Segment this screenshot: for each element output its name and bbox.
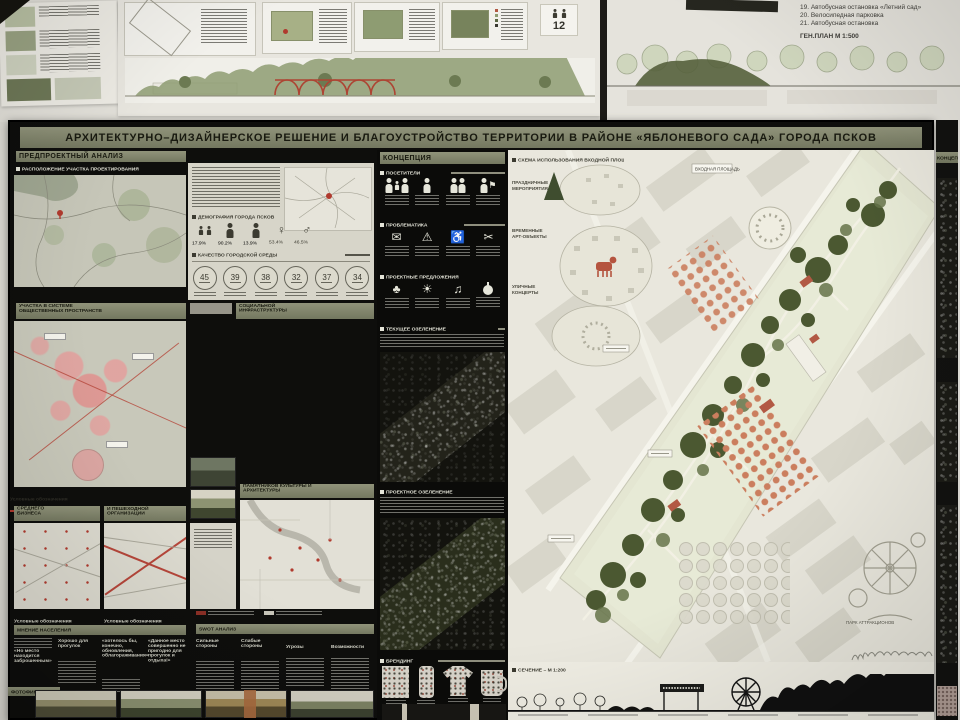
visitors-subheader: ПОСЕТИТЕЛИ <box>380 168 505 178</box>
family-icon <box>385 178 393 193</box>
business-map <box>14 523 100 609</box>
legend-chip <box>495 14 498 17</box>
analysis-paragraph <box>192 167 280 209</box>
family-icon <box>401 178 409 193</box>
branding-header-text: БРЕНДИНГ <box>386 658 413 664</box>
visitor-type: ⚑ <box>474 178 503 207</box>
small-gray-box <box>190 303 232 314</box>
adjacent-board-header-bar: КОНЦЕП <box>936 152 958 163</box>
attractions-label: ПАРК АТТРАКЦИОНОВ <box>846 620 894 625</box>
culture-monuments-map <box>240 500 374 609</box>
legend-chip <box>495 24 498 27</box>
map-transport-header: КАРТА-СХЕМА ТРАНСПОРТНОЙ И ПЕШЕХОДНОЙ ОР… <box>107 506 149 515</box>
legend-block <box>196 611 366 617</box>
paving-texture-sample <box>937 686 957 716</box>
proposal-item: ♫ <box>443 282 472 310</box>
person-icon <box>552 9 557 18</box>
context-map-fragment <box>190 523 236 609</box>
map-business-header-bar: КАРТА-СХЕМА РАСПОЛОЖЕНИЯ МАЛОГО И СРЕДНЕ… <box>14 506 100 521</box>
bubble-label: ВРЕМЕННЫЕ <box>512 228 543 233</box>
events-icon: ♫ <box>453 282 462 296</box>
mini-map-thumb <box>6 55 37 76</box>
panel-legend <box>409 9 435 41</box>
flag-icon: ⚑ <box>488 178 496 193</box>
mini-photo-thumb <box>7 78 52 101</box>
visitors-icons-row: ⚑ <box>380 178 505 207</box>
visitor-type <box>382 178 411 207</box>
site-photo <box>120 690 202 718</box>
resident-quote: «хотелось бы, конечно, обновления, облаг… <box>102 638 143 658</box>
photo-artifact-strip <box>244 690 256 718</box>
demography-value: 13.9% <box>243 240 257 246</box>
transport-map <box>104 523 186 609</box>
map-culture-header-bar: КАРТА-СХЕМА РАСПОЛОЖЕНИЯ ПАМЯТНИКОВ КУЛЬ… <box>240 484 374 498</box>
problems-subheader: ПРОБЛЕМАТИКА <box>380 220 505 230</box>
map-label-chip <box>106 441 128 448</box>
adjacent-board-image <box>937 178 957 358</box>
opinion-quotes: «Но место находится заброшенным» Хорошо … <box>14 638 188 686</box>
site-photo <box>190 457 236 487</box>
badge-number: 12 <box>553 21 565 32</box>
site-plan-shape <box>271 11 313 41</box>
greenery-icon: ♣ <box>393 282 401 296</box>
map-culture-header: КАРТА-СХЕМА РАСПОЛОЖЕНИЯ ПАМЯТНИКОВ КУЛЬ… <box>243 484 313 493</box>
concept-header-bar: КОНЦЕПЦИЯ <box>380 152 505 164</box>
quote-column: Хорошо для прогулок <box>58 638 98 686</box>
plan-marker <box>283 29 288 34</box>
map-label-chip <box>132 353 154 360</box>
map-label-chip <box>44 333 66 340</box>
demography-value: 46.5% <box>294 239 308 245</box>
location-header-text: РАСПОЛОЖЕНИЕ УЧАСТКА ПРОЕКТИРОВАНИЯ <box>22 166 139 172</box>
capacity-badge: 12 <box>540 4 578 36</box>
project-greenery-header-text: ПРОЕКТНОЕ ОЗЕЛЕНЕНИЕ <box>386 489 453 495</box>
quality-score: 34 <box>343 266 372 298</box>
map-social-header: КАРТА-СХЕМА РАСПОЛОЖЕНИЯ ОБЪЕКТОВ СОЦИАЛ… <box>239 303 312 313</box>
demography-item: 13.9% <box>243 223 269 248</box>
adjacent-section-label: ЗИМН <box>937 372 957 378</box>
accessibility-icon: ♿ <box>450 230 465 244</box>
quality-scores-row: 45 39 38 32 37 34 <box>190 266 372 298</box>
visitor-type <box>443 178 472 207</box>
floor-highlight <box>402 704 407 720</box>
demography-item: ♀ 53.4% <box>269 223 295 248</box>
adjacent-section-label: ЛЕТНЯЯ С <box>937 168 957 174</box>
legend-swatch <box>196 611 206 615</box>
legend-chip <box>495 9 498 12</box>
teenager-icon <box>423 178 431 193</box>
demography-icons-row: 17.9% 90.2% 13.9% ♀ 53.4% ♂ 46.5% <box>192 223 280 248</box>
resident-quote: «Но место находится заброшенным» <box>14 648 53 663</box>
mini-analysis-board <box>0 0 119 106</box>
board-title-bar: АРХИТЕКТУРНО–ДИЗАЙНЕРСКОЕ РЕШЕНИЕ И БЛАГ… <box>20 127 922 148</box>
demography-subheader: ДЕМОГРАФИЯ ГОРОДА ПСКОВ <box>192 213 280 220</box>
resident-quote: «Данное место совершенно не пригодно для… <box>148 638 191 663</box>
child-icon <box>394 181 399 190</box>
proposals-subheader: ПРОЕКТНЫЕ ПРЕДЛОЖЕНИЯ <box>380 272 505 282</box>
entrance-scheme-header-text: СХЕМА ИСПОЛЬЗОВАНИЯ ВХОДНОЙ ПЛОЩАДИ <box>518 157 624 163</box>
masterplan-drawing: ПРАЗДНИЧНЫЕ МЕРОПРИЯТИЯ ВРЕМЕННЫЕ АРТ-ОБ… <box>508 150 934 662</box>
entrance-plaza-label: ВХОДНАЯ ПЛОЩАДЬ <box>695 167 740 172</box>
mini-map-thumb <box>5 31 36 52</box>
quality-score: 39 <box>221 266 250 298</box>
bubble-label: ПРАЗДНИЧНЫЕ <box>512 180 548 185</box>
legend-title: Условные обозначения <box>104 618 162 624</box>
legend-item: 19. Автобусная остановка «Летний сад» <box>800 4 955 12</box>
swot-header: SWOT АНАЛИЗ <box>199 626 236 632</box>
swot-table: Сильные стороны Слабые стороны Угрозы Во… <box>196 638 374 686</box>
mini-map-thumb <box>55 77 102 100</box>
proposals-header-text: ПРОЕКТНЫЕ ПРЕДЛОЖЕНИЯ <box>386 274 459 280</box>
analysis-header: ПРЕДПРОЕКТНЫЙ АНАЛИЗ <box>19 153 123 160</box>
section-silhouette-drawing <box>508 674 934 720</box>
demography-item: 90.2% <box>218 223 244 248</box>
legend-item: 21. Автобусная остановка <box>800 20 955 28</box>
female-icon: ♀ <box>277 223 286 237</box>
proposal-item: ☀ <box>413 282 442 310</box>
mini-plan-panel <box>354 2 440 52</box>
floor-shadow <box>382 704 506 720</box>
warning-icon: ⚠ <box>422 230 433 244</box>
section-header-text: СЕЧЕНИЕ – М 1:200 <box>518 667 566 673</box>
family-icon <box>198 226 203 235</box>
branding-subheader: БРЕНДИНГ <box>380 656 505 666</box>
legend-title: Условные обозначения <box>14 618 72 624</box>
concept-header: КОНЦЕПЦИЯ <box>383 155 431 162</box>
panel-text <box>201 9 247 45</box>
problems-icons-row: ✉ ⚠ ♿ ✂ <box>380 230 505 258</box>
swot-header-bar: SWOT АНАЛИЗ <box>196 624 374 634</box>
map-public-header-bar: КАРТА-СХЕМА РАСПОЛОЖЕНИЯ УЧАСТКА В СИСТЕ… <box>16 303 186 319</box>
adjacent-section-label: ПОКРЫТИЯ <box>937 677 957 683</box>
analysis-header-bar: ПРЕДПРОЕКТНЫЙ АНАЛИЗ <box>16 151 186 162</box>
location-subheader: РАСПОЛОЖЕНИЕ УЧАСТКА ПРОЕКТИРОВАНИЯ <box>16 165 184 172</box>
swot-column: Слабые стороны <box>241 638 281 686</box>
quote-column: «Данное место совершенно не пригодно для… <box>148 638 192 686</box>
swot-column-header: Слабые стороны <box>241 638 280 648</box>
site-plan-shape <box>363 10 403 39</box>
site-photo <box>35 690 117 718</box>
site-photo <box>290 690 374 718</box>
merch-phone-case <box>417 666 435 704</box>
visitors-header-text: ПОСЕТИТЕЛИ <box>386 170 420 176</box>
demography-item: ♂ 46.5% <box>294 223 320 248</box>
swot-column-header: Угрозы <box>286 644 325 649</box>
person-icon <box>561 9 566 18</box>
opinion-header: МНЕНИЕ НАСЕЛЕНИЯ <box>17 627 71 633</box>
project-greenery-paragraph <box>380 497 504 515</box>
problem-item: ✂ <box>474 230 503 258</box>
quality-score: 38 <box>251 266 280 298</box>
demography-value: 53.4% <box>269 239 283 245</box>
visitor-type <box>413 178 442 207</box>
demography-item: 17.9% <box>192 223 218 248</box>
swot-column: Сильные стороны <box>196 638 236 686</box>
board-title: АРХИТЕКТУРНО–ДИЗАЙНЕРСКОЕ РЕШЕНИЕ И БЛАГ… <box>65 132 876 144</box>
family-icon <box>206 226 211 235</box>
handwritten-note <box>850 648 934 664</box>
floor-highlight <box>470 704 479 720</box>
quality-header-text: КАЧЕСТВО ГОРОДСКОЙ СРЕДЫ <box>198 252 277 258</box>
swot-column-header: Возможности <box>331 644 370 649</box>
adjacent-board-image <box>937 382 957 482</box>
legend-block: Условные обозначения <box>10 489 188 504</box>
treeline-elevation-sketch <box>607 28 960 120</box>
legend-swatch <box>264 611 274 615</box>
city-mini-map <box>284 167 372 231</box>
park-elevation-drawing <box>125 58 595 103</box>
map-transport-header-bar: КАРТА-СХЕМА ТРАНСПОРТНОЙ И ПЕШЕХОДНОЙ ОР… <box>104 506 186 521</box>
board-gap <box>600 0 607 120</box>
public-spaces-map <box>14 321 186 487</box>
proposals-icons-row: ♣ ☀ ♫ <box>380 282 505 310</box>
adjacent-board-header: КОНЦЕП <box>937 155 958 161</box>
problem-item: ♿ <box>443 230 472 258</box>
tourist-icon <box>480 178 488 193</box>
lighting-icon: ☀ <box>422 282 433 296</box>
problems-header-text: ПРОБЛЕМАТИКА <box>386 222 427 228</box>
proposal-item <box>474 282 503 310</box>
problem-item: ✉ <box>382 230 411 258</box>
panel-legend <box>319 9 347 43</box>
male-icon: ♂ <box>302 223 311 237</box>
map-social-header-bar: КАРТА-СХЕМА РАСПОЛОЖЕНИЯ ОБЪЕКТОВ СОЦИАЛ… <box>236 303 374 319</box>
bubble-label: УЛИЧНЫЕ <box>512 284 535 289</box>
quality-score: 37 <box>312 266 341 298</box>
plan-outline <box>129 0 191 56</box>
swot-column-header: Сильные стороны <box>196 638 235 648</box>
mug-handle <box>497 676 507 692</box>
child-icon <box>226 223 234 238</box>
current-greenery-paragraph <box>380 334 504 349</box>
quality-score: 45 <box>190 266 219 298</box>
adult-icon <box>252 223 260 238</box>
region-map <box>14 175 186 287</box>
demography-value: 90.2% <box>218 240 232 246</box>
mini-board-text <box>39 29 99 49</box>
project-greenery-map <box>380 518 505 650</box>
pink-zone-circle <box>72 449 104 481</box>
mini-board-text <box>40 53 100 73</box>
map-business-header: КАРТА-СХЕМА РАСПОЛОЖЕНИЯ МАЛОГО И СРЕДНЕ… <box>17 506 61 516</box>
abandonment-icon: ✉ <box>391 230 401 244</box>
site-photo <box>190 489 236 519</box>
proposal-item: ♣ <box>382 282 411 310</box>
current-greenery-header-text: ТЕКУЩЕЕ ОЗЕЛЕНЕНИЕ <box>386 326 446 332</box>
opinion-header-bar: МНЕНИЕ НАСЕЛЕНИЯ <box>14 625 186 635</box>
panel-legend <box>501 9 523 41</box>
swot-column: Угрозы <box>286 638 326 686</box>
analysis-panel: ДЕМОГРАФИЯ ГОРОДА ПСКОВ 17.9% 90.2% 13.9… <box>188 163 374 300</box>
entrance-scheme-subheader: СХЕМА ИСПОЛЬЗОВАНИЯ ВХОДНОЙ ПЛОЩАДИ <box>512 155 624 165</box>
photo-of-presentation-boards: 12 19. Автобусная остановка «Летний сад»… <box>0 0 960 720</box>
problem-item: ⚠ <box>413 230 442 258</box>
current-greenery-map <box>380 352 505 482</box>
quality-scale-line <box>192 261 370 262</box>
legend-chip <box>495 19 498 22</box>
map-public-header: КАРТА-СХЕМА РАСПОЛОЖЕНИЯ УЧАСТКА В СИСТЕ… <box>19 303 109 312</box>
merch-pattern <box>382 666 409 704</box>
adjacent-section-label: СХЕМА О <box>937 495 957 501</box>
quote-column: «Но место находится заброшенным» <box>14 638 54 686</box>
vandalism-icon: ✂ <box>483 230 493 244</box>
current-greenery-subheader: ТЕКУЩЕЕ ОЗЕЛЕНЕНИЕ <box>380 324 505 334</box>
demography-header-text: ДЕМОГРАФИЯ ГОРОДА ПСКОВ <box>198 214 274 220</box>
quality-score: 32 <box>282 266 311 298</box>
mini-plan-panel <box>262 2 352 54</box>
resident-quote: Хорошо для прогулок <box>58 638 97 648</box>
merch-tshirt <box>443 666 473 702</box>
quote-column: «хотелось бы, конечно, обновления, облаг… <box>102 638 144 686</box>
merch-mug <box>481 666 503 702</box>
site-plan-shape <box>451 10 489 38</box>
project-greenery-subheader: ПРОЕКТНОЕ ОЗЕЛЕНЕНИЕ <box>380 487 505 497</box>
mini-board-text <box>39 5 99 17</box>
apple-icon <box>483 285 493 295</box>
legend-item: 20. Велосипедная парковка <box>800 12 955 20</box>
couple-icon <box>450 178 458 193</box>
adjacent-board-image <box>937 505 957 663</box>
bubble-label: КОНЦЕРТЫ <box>512 290 539 295</box>
quality-subheader: КАЧЕСТВО ГОРОДСКОЙ СРЕДЫ <box>192 251 370 258</box>
mini-plan-panel <box>124 2 256 56</box>
couple-icon <box>458 178 466 193</box>
demography-value: 17.9% <box>192 240 206 246</box>
bubble-label: АРТ-ОБЪЕКТЫ <box>512 234 547 239</box>
bubble-label: МЕРОПРИЯТИЯ <box>512 186 548 191</box>
mini-plan-panel <box>442 2 528 50</box>
swot-column: Возможности <box>331 638 371 686</box>
legend-title: Условные обозначения <box>10 496 68 502</box>
